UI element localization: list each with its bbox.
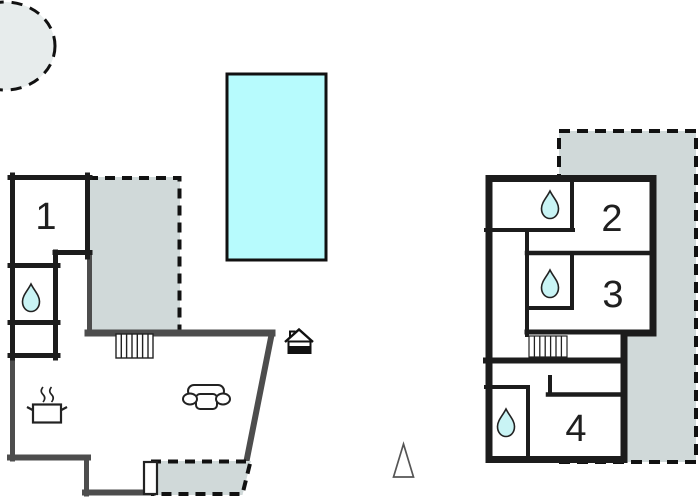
floor-plan-page: 1 2 3 4 [0, 0, 700, 500]
room-1-label: 1 [24, 193, 68, 241]
round-patio [0, 2, 55, 90]
stairs-main-house [116, 334, 153, 358]
room-4-label: 4 [554, 405, 598, 453]
cooking-pot-icon [27, 387, 67, 423]
stairs-annex [529, 336, 567, 357]
terrace-bottom [151, 461, 251, 495]
water-drop-icon [23, 284, 40, 312]
house-entrance-icon [285, 330, 313, 354]
room-2-label: 2 [590, 195, 634, 243]
room-3-label: 3 [591, 271, 635, 319]
terrace-main-house [88, 177, 180, 331]
entrance-door [144, 462, 157, 494]
north-triangle-icon [394, 444, 414, 477]
sofa-icon [183, 385, 230, 409]
swimming-pool [227, 74, 326, 260]
